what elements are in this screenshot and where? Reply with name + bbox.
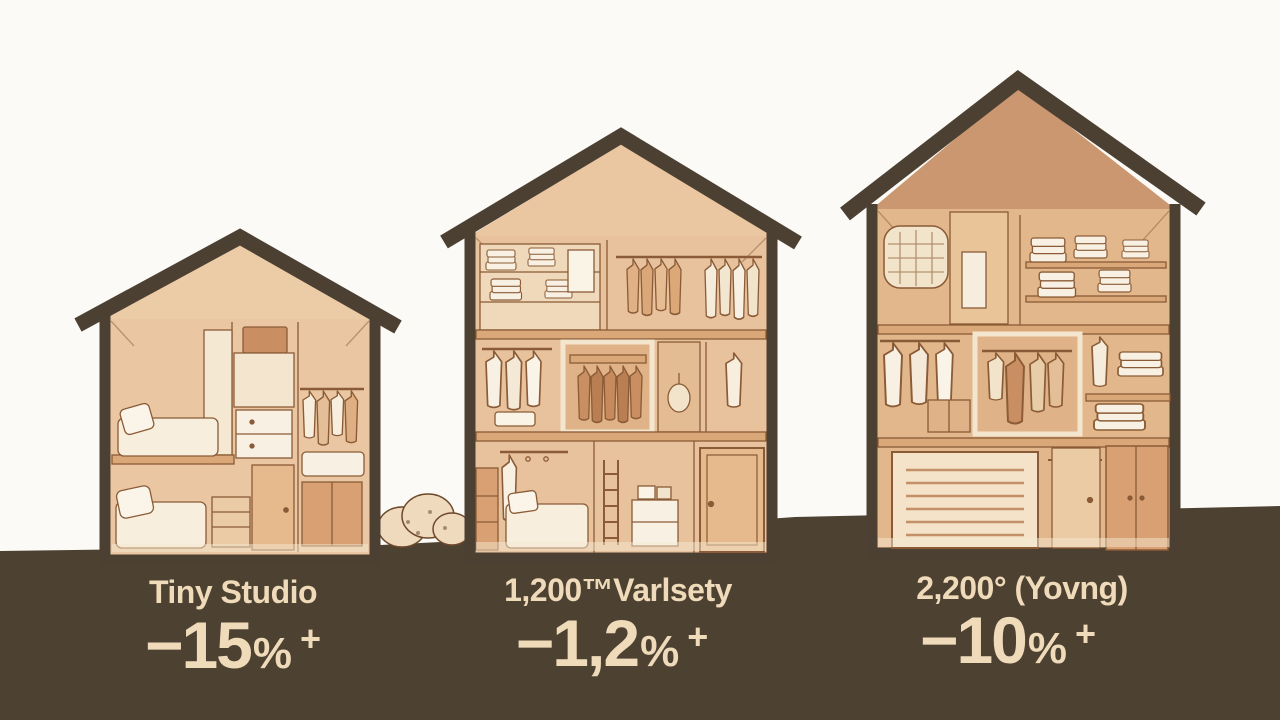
house-2-label: 1,200™Varlsety	[504, 572, 733, 608]
beam	[476, 432, 766, 441]
sofa-cushion	[115, 485, 154, 519]
mattress	[302, 452, 364, 476]
door	[700, 448, 764, 552]
house-1-label: Tiny Studio	[149, 574, 317, 610]
house-3-label: 2,200° (Yovng)	[916, 570, 1127, 606]
beam	[476, 330, 766, 339]
dresser	[632, 500, 678, 546]
side-cabinet	[476, 468, 498, 550]
doorway	[1052, 448, 1100, 548]
illustration-canvas: Tiny Studio −15%+ 1,200™Varlsety −1,2%+ …	[0, 0, 1280, 720]
house-size-comparison-infographic: Tiny Studio −15%+ 1,200™Varlsety −1,2%+ …	[0, 0, 1280, 720]
pillow	[508, 490, 539, 514]
closet-door	[252, 465, 294, 550]
hanging-bag	[668, 384, 690, 412]
drawer-chest	[212, 497, 250, 547]
cabinet	[234, 353, 294, 407]
storage-box	[243, 327, 287, 353]
wardrobe	[1106, 446, 1168, 550]
garage-door	[892, 452, 1038, 548]
